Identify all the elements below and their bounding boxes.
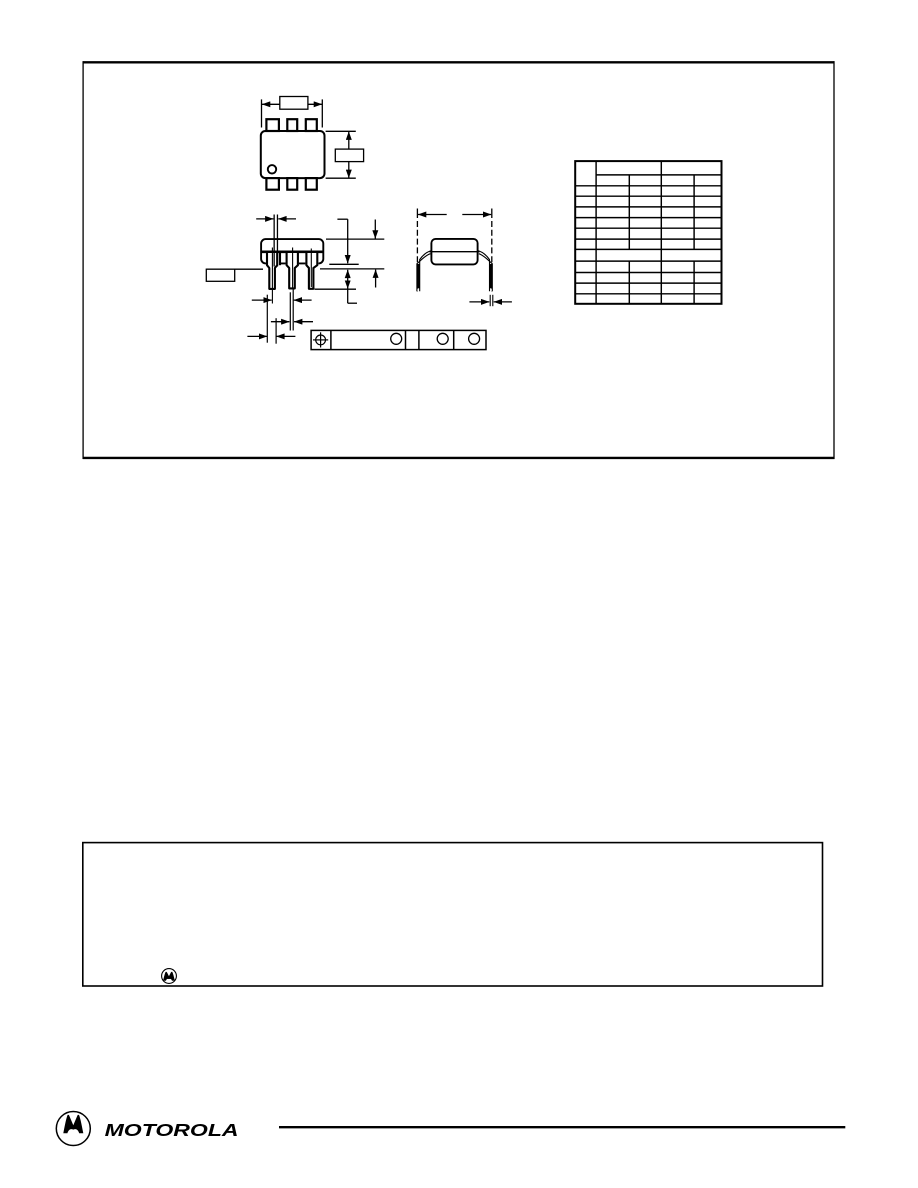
svg-text:MOTOROLA: MOTOROLA [105, 1120, 239, 1140]
